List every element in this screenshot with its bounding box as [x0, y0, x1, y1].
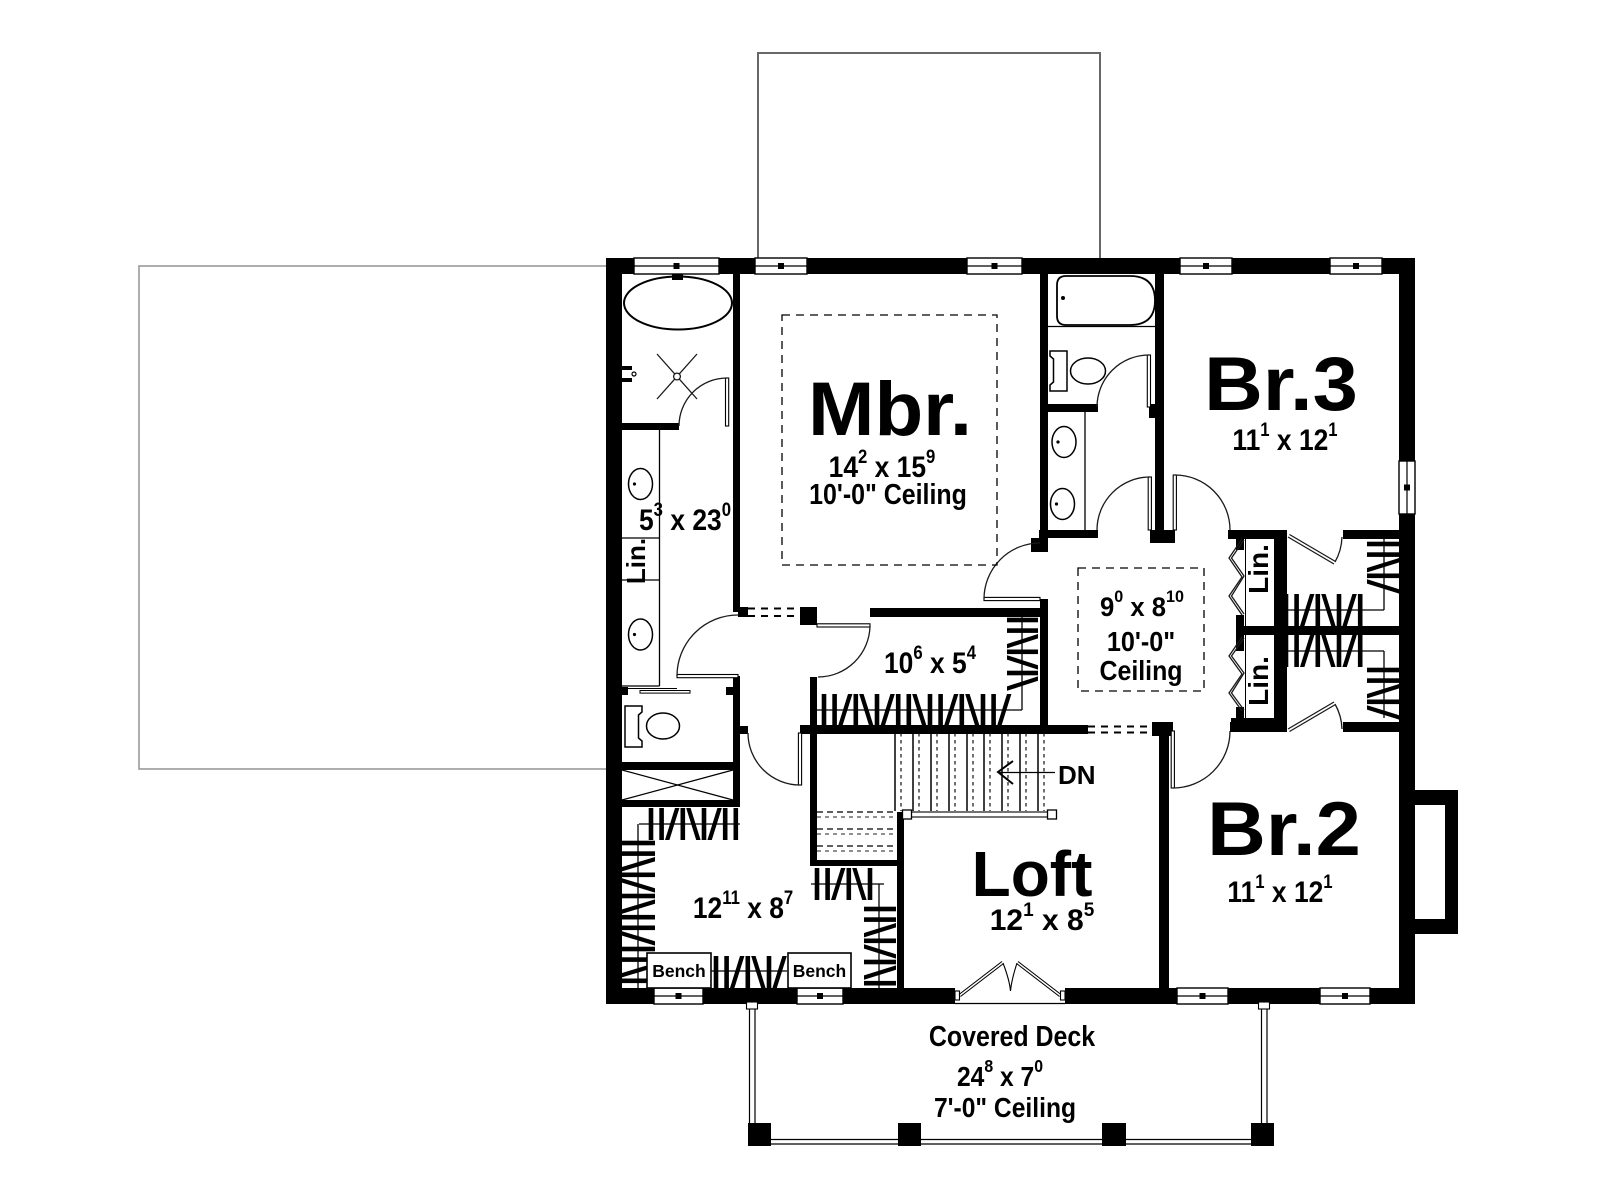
- svg-text:111 x 121: 111 x 121: [1232, 419, 1337, 456]
- svg-text:106 x 54: 106 x 54: [884, 642, 976, 679]
- svg-text:Br.3: Br.3: [1204, 341, 1358, 426]
- svg-text:Lin.: Lin.: [1243, 544, 1274, 594]
- svg-text:Mbr.: Mbr.: [808, 366, 972, 452]
- svg-text:7'-0" Ceiling: 7'-0" Ceiling: [934, 1092, 1076, 1124]
- svg-text:Lin.: Lin.: [621, 538, 651, 584]
- svg-text:Ceiling: Ceiling: [1099, 655, 1182, 687]
- svg-text:248 x 70: 248 x 70: [957, 1056, 1043, 1092]
- svg-text:DN: DN: [1058, 760, 1096, 790]
- svg-text:Lin.: Lin.: [1243, 656, 1274, 706]
- svg-text:Br.2: Br.2: [1207, 786, 1361, 871]
- svg-text:1211 x 87: 1211 x 87: [693, 887, 793, 924]
- svg-text:Covered Deck: Covered Deck: [929, 1020, 1096, 1052]
- svg-text:53 x 230: 53 x 230: [639, 499, 731, 536]
- svg-text:Bench: Bench: [793, 961, 846, 981]
- svg-text:Bench: Bench: [652, 961, 705, 981]
- svg-text:111 x 121: 111 x 121: [1227, 871, 1332, 908]
- svg-text:10'-0": 10'-0": [1107, 626, 1175, 658]
- svg-text:10'-0" Ceiling: 10'-0" Ceiling: [809, 478, 967, 510]
- svg-text:121 x 85: 121 x 85: [990, 900, 1095, 937]
